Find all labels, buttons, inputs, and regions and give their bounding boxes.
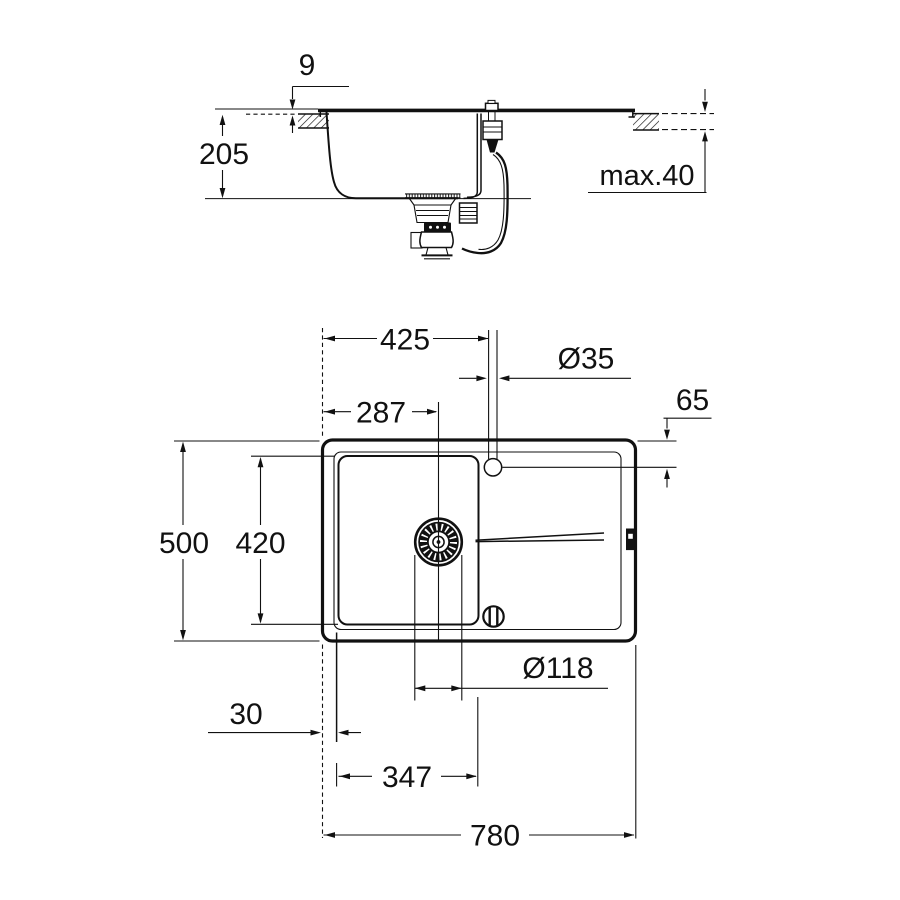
dim-bowl-inner-width: 347 [339, 761, 477, 794]
waste-body [420, 232, 453, 248]
mounting-clip [626, 529, 635, 551]
dim-label-tap-from-left: 425 [380, 324, 430, 357]
dim-label-counter-thickness: max.40 [599, 160, 694, 192]
dim-label-drain-from-left: 287 [356, 397, 406, 430]
overflow-top-fitting [486, 103, 499, 110]
plan-view: 425 Ø35 65 287 [159, 324, 712, 853]
dim-label-edge-to-bowl: 30 [229, 698, 262, 731]
dim-tap-hole-diameter: Ø35 [459, 343, 631, 382]
counter-hatch-right [633, 114, 714, 130]
overflow-funnel [487, 140, 499, 153]
tap-hole [484, 459, 501, 476]
dim-label-tap-hole-diameter: Ø35 [558, 343, 615, 376]
technical-drawing-page: 9 205 [0, 0, 900, 900]
drainer-grooves [476, 533, 605, 542]
dim-label-drain-diameter: Ø118 [522, 652, 593, 685]
strainer-basket [414, 205, 451, 223]
dim-bowl-depth: 205 [199, 115, 249, 198]
sink-rim-profile [318, 110, 635, 117]
counter-hatch-left [298, 114, 329, 128]
dim-label-tap-from-edge: 65 [676, 384, 709, 417]
dim-label-rim-height: 9 [299, 49, 316, 82]
dim-drain-from-left: 287 [324, 397, 438, 430]
strainer-flange [405, 194, 461, 198]
dim-tap-from-left: 425 [324, 324, 489, 357]
drain-waste-assembly [405, 100, 508, 258]
sink-dimension-drawing: 9 205 [0, 0, 900, 900]
threaded-coupling [460, 203, 478, 223]
dim-label-bowl-inner-width: 347 [382, 761, 432, 794]
overflow-knob [483, 606, 503, 626]
dim-drain-diameter: Ø118 [415, 555, 608, 701]
dim-edge-to-bowl: 30 [208, 698, 361, 736]
dim-tap-from-edge: 65 [503, 384, 712, 488]
side-elevation-view: 9 205 [199, 49, 714, 259]
dim-label-bowl-depth: 205 [199, 138, 249, 171]
dim-label-bowl-inner-depth: 420 [235, 527, 285, 560]
dim-label-overall-width: 780 [470, 820, 520, 853]
overflow-elbow [483, 121, 502, 140]
bowl-profile [327, 112, 482, 198]
dim-label-overall-depth: 500 [159, 527, 209, 560]
dim-counter-thickness: max.40 [588, 89, 708, 193]
drain-strainer [415, 519, 462, 566]
